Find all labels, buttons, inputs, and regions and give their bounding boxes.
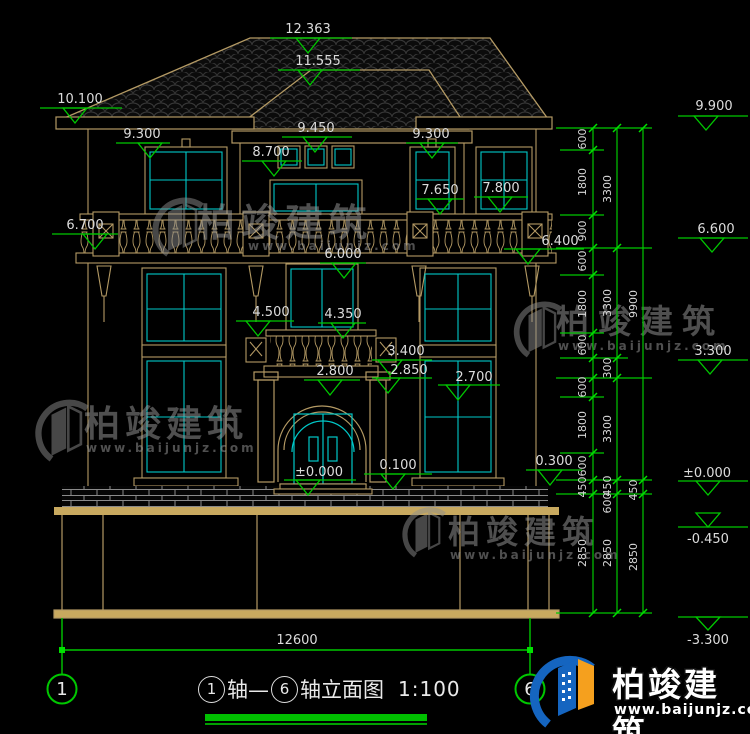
svg-text:9900: 9900 [627, 290, 640, 318]
svg-text:2850: 2850 [601, 539, 614, 567]
title-axis-end: 6 [271, 676, 298, 703]
svg-text:12.363: 12.363 [285, 22, 331, 37]
svg-text:10.100: 10.100 [57, 92, 103, 107]
watermark-url: www.baijunjz.com [450, 548, 621, 562]
svg-text:600: 600 [576, 335, 589, 356]
title-underline-thin [205, 723, 427, 725]
svg-text:6.400: 6.400 [541, 234, 578, 249]
svg-text:600: 600 [576, 377, 589, 398]
svg-text:2.800: 2.800 [316, 364, 353, 379]
dim-col2-labels: 3300 3300 300 3300 450 600 2850 [601, 175, 614, 567]
svg-text:1800: 1800 [576, 168, 589, 196]
svg-text:600: 600 [576, 129, 589, 150]
svg-text:-0.450: -0.450 [687, 532, 729, 547]
svg-text:600: 600 [576, 456, 589, 477]
svg-text:8.700: 8.700 [252, 145, 289, 160]
svg-text:3300: 3300 [601, 415, 614, 443]
total-width-label: 12600 [276, 633, 317, 648]
svg-text:3.300: 3.300 [694, 344, 731, 359]
elevation-drawing-canvas: 柏竣建筑 www.baijunjz.com 柏竣建筑 www.baijunjz.… [0, 0, 750, 734]
brand-name: 柏竣建筑 [612, 658, 750, 734]
svg-text:3300: 3300 [601, 289, 614, 317]
title-axis-start: 1 [198, 676, 225, 703]
svg-text:450: 450 [627, 480, 640, 501]
svg-text:0.300: 0.300 [535, 454, 572, 469]
svg-text:2.850: 2.850 [390, 363, 427, 378]
brand-url: www.baijunjz.com [614, 702, 750, 718]
svg-text:±0.000: ±0.000 [295, 465, 343, 480]
drawing-title: 1轴—6轴立面图1:100 [196, 674, 461, 704]
marker-9-300-left: 9.300 [116, 127, 170, 158]
svg-text:9.450: 9.450 [297, 121, 334, 136]
axis-number-start: 1 [56, 679, 67, 700]
title-underline [205, 714, 427, 721]
svg-text:9.900: 9.900 [695, 99, 732, 114]
marker-minus-3-300: -3.300 [678, 617, 748, 648]
title-mid: 轴— [227, 674, 269, 704]
svg-text:900: 900 [576, 221, 589, 242]
watermark-url: www.baijunjz.com [86, 441, 257, 455]
svg-text:4.500: 4.500 [252, 305, 289, 320]
svg-text:300: 300 [601, 358, 614, 379]
svg-text:9.300: 9.300 [123, 127, 160, 142]
svg-text:7.650: 7.650 [421, 183, 458, 198]
svg-text:3.400: 3.400 [387, 344, 424, 359]
cad-elevation-svg: 柏竣建筑 www.baijunjz.com 柏竣建筑 www.baijunjz.… [0, 0, 750, 734]
svg-text:6.700: 6.700 [66, 218, 103, 233]
svg-text:1800: 1800 [576, 290, 589, 318]
marker-7-800: 7.800 [474, 181, 528, 212]
svg-text:6.600: 6.600 [697, 222, 734, 237]
watermark-left: 柏竣建筑 www.baijunjz.com [38, 403, 256, 459]
svg-text:11.555: 11.555 [295, 54, 341, 69]
right-elevation-markers: 9.900 6.600 3.300 ±0.000 -0.450 -3.300 [678, 99, 748, 648]
marker-6-600: 6.600 [678, 222, 748, 252]
svg-text:4.350: 4.350 [324, 307, 361, 322]
title-scale: 1:100 [398, 677, 461, 701]
svg-text:2850: 2850 [576, 539, 589, 567]
svg-text:-3.300: -3.300 [687, 633, 729, 648]
title-suffix: 轴立面图 [300, 674, 384, 704]
svg-text:450: 450 [576, 477, 589, 498]
svg-text:600: 600 [576, 251, 589, 272]
svg-text:6.000: 6.000 [324, 247, 361, 262]
svg-text:600: 600 [601, 493, 614, 514]
marker-0-000-right: ±0.000 [678, 466, 748, 495]
svg-text:0.100: 0.100 [379, 458, 416, 473]
marker-minus-0-450: -0.450 [678, 513, 748, 547]
marker-6-000: 6.000 [320, 247, 366, 278]
svg-text:±0.000: ±0.000 [683, 466, 731, 481]
dim-col1-labels: 600 1800 900 600 1800 600 600 1800 600 4… [576, 129, 589, 568]
marker-8-700: 8.700 [242, 145, 302, 176]
plinth [54, 478, 559, 515]
svg-text:7.800: 7.800 [482, 181, 519, 196]
svg-text:3300: 3300 [601, 175, 614, 203]
marker-2-850: 2.850 [372, 363, 432, 393]
svg-text:1800: 1800 [576, 411, 589, 439]
watermark-name: 柏竣建筑 [84, 404, 248, 445]
marker-9-900: 9.900 [678, 99, 748, 130]
svg-text:2.700: 2.700 [455, 370, 492, 385]
svg-text:2850: 2850 [627, 543, 640, 571]
svg-text:9.300: 9.300 [412, 127, 449, 142]
foundation-slab [54, 610, 559, 618]
